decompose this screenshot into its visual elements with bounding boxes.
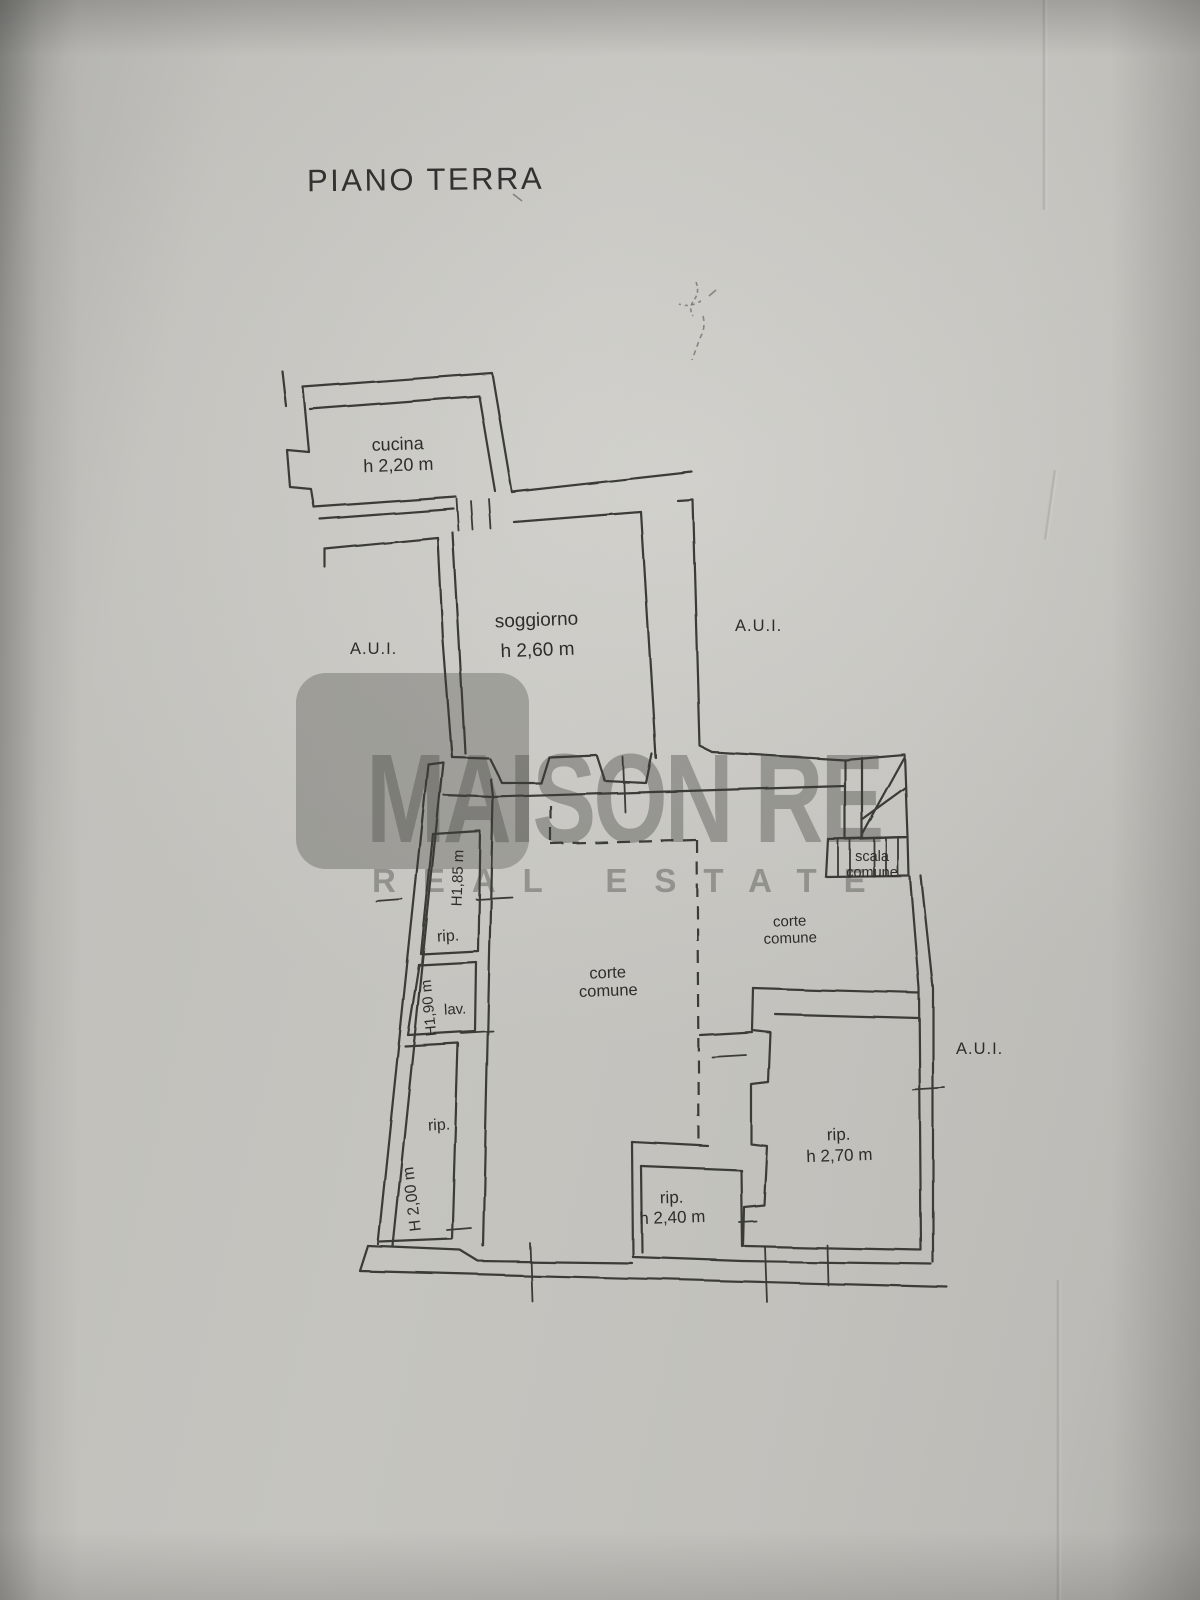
page-title: PIANO TERRA	[307, 161, 544, 199]
area-label-aui-mid: A.U.I.	[735, 617, 782, 636]
room-label-rip-left: rip.	[428, 1116, 451, 1135]
room-label-cucina: cucina h 2,20 m	[362, 433, 433, 477]
room-name: soggiorno	[494, 605, 578, 638]
room-label-lav: lav.	[444, 1000, 467, 1018]
scanned-floor-plan-page: MAISON RE REAL ESTATE	[0, 0, 1200, 1600]
height-label-rip-top: H1,85 m	[449, 849, 468, 906]
floor-plan-svg	[0, 0, 1200, 1600]
walls-bottom	[360, 1243, 947, 1302]
area-label-scala-comune: scala comune	[832, 849, 912, 881]
room-label-rip-center: rip. h 2,40 m	[638, 1187, 706, 1229]
area-label-aui-right: A.U.I.	[956, 1040, 1003, 1059]
room-name: rip.	[805, 1123, 872, 1146]
room-height: h 2,20 m	[363, 454, 434, 477]
room-height: h 2,60 m	[495, 635, 579, 668]
walls-right-boundary	[910, 876, 945, 1262]
area-label-corte-center: corte comune	[562, 962, 653, 1001]
room-label-rip-top: rip.	[437, 927, 460, 946]
room-height: h 2,70 m	[806, 1144, 873, 1167]
area-label-aui-left: A.U.I.	[350, 640, 397, 659]
room-name: rip.	[638, 1187, 705, 1209]
room-name: cucina	[362, 433, 433, 456]
scan-smudge	[513, 194, 716, 360]
room-label-rip-right: rip. h 2,70 m	[805, 1123, 873, 1167]
room-label-soggiorno: soggiorno h 2,60 m	[494, 605, 579, 668]
room-height: h 2,40 m	[639, 1207, 706, 1229]
walls-soggiorno	[325, 533, 652, 812]
area-label-corte-right: corte comune	[746, 913, 833, 949]
